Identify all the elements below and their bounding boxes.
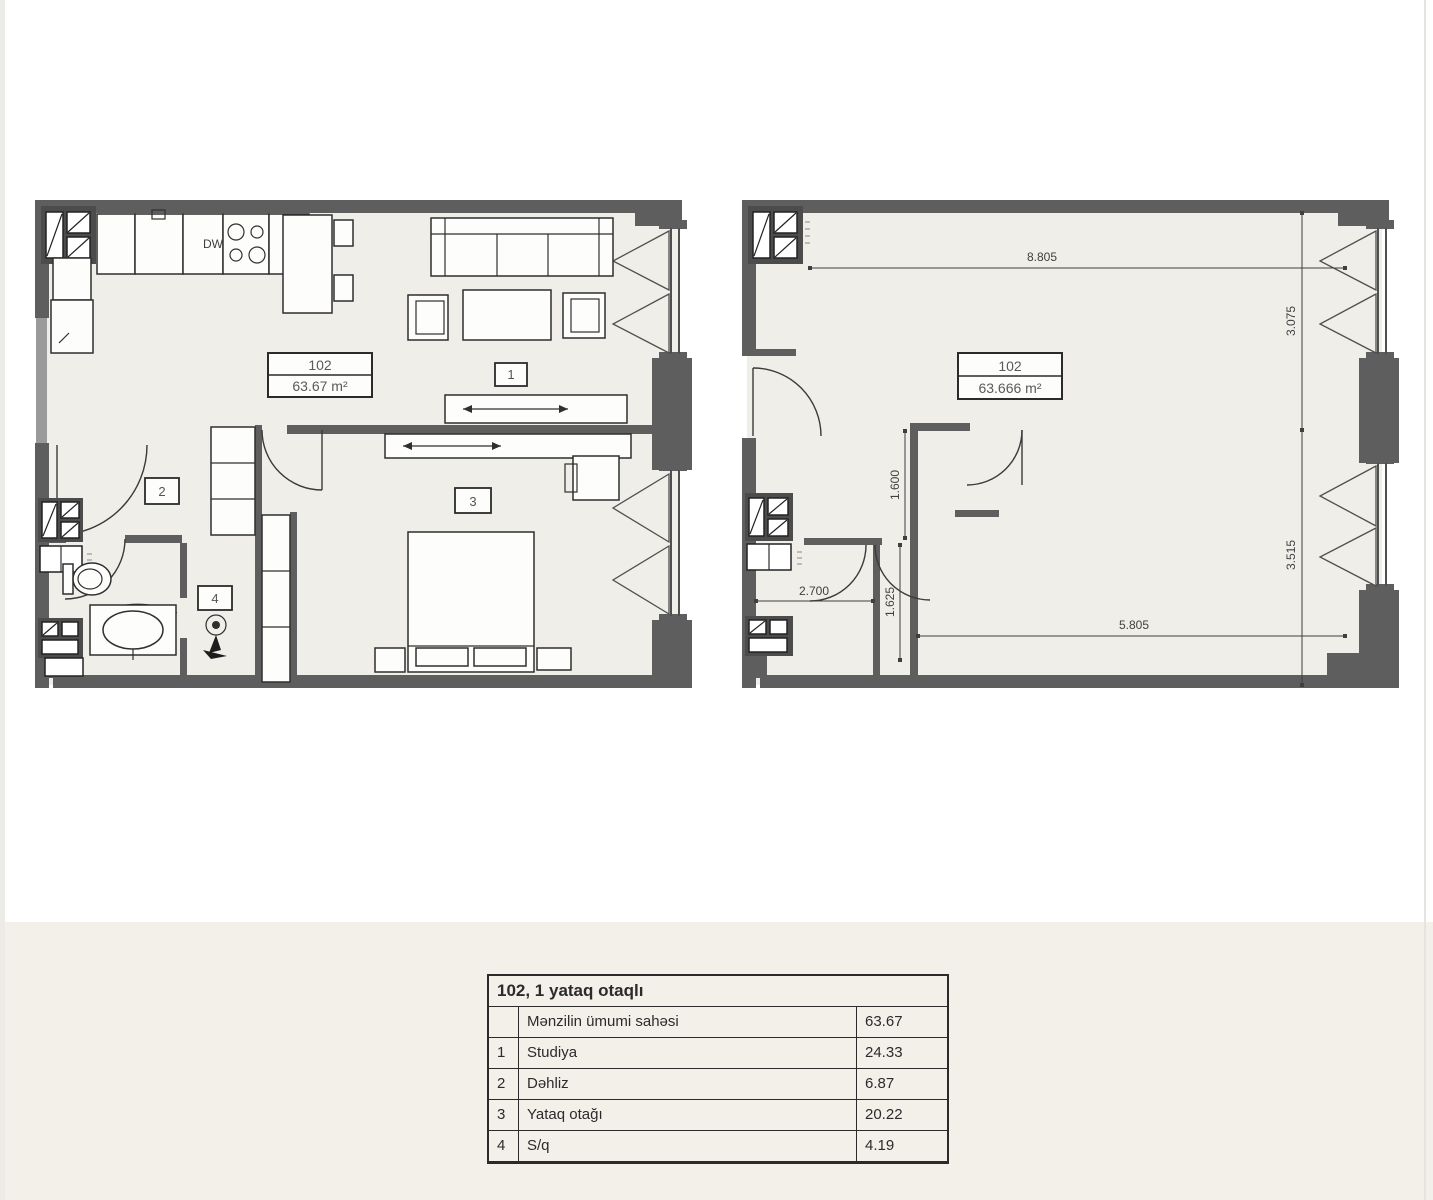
unit-label-box: 102 63.666 m² xyxy=(958,353,1062,399)
unit-number: 102 xyxy=(308,357,332,373)
room-tag-hall: 2 xyxy=(145,478,179,504)
sofa xyxy=(431,218,613,276)
hall-wardrobe xyxy=(211,427,255,535)
row-area: 4.19 xyxy=(857,1131,947,1161)
nightstand-left xyxy=(375,648,405,672)
row-number: 2 xyxy=(489,1069,519,1099)
row-area: 6.87 xyxy=(857,1069,947,1099)
table-row: 4 S/q 4.19 xyxy=(489,1131,947,1162)
row-area: 24.33 xyxy=(857,1038,947,1068)
room-tag-bath: 4 xyxy=(198,586,232,610)
toilet xyxy=(63,563,111,595)
nightstand-right xyxy=(537,648,571,670)
row-area: 63.67 xyxy=(857,1007,947,1037)
row-number: 1 xyxy=(489,1038,519,1068)
floor xyxy=(747,203,1382,685)
row-number: 3 xyxy=(489,1100,519,1130)
row-area: 20.22 xyxy=(857,1100,947,1130)
room-tag-studio: 1 xyxy=(495,363,527,386)
svg-text:1: 1 xyxy=(507,367,514,382)
utility-shaft-top xyxy=(748,206,810,264)
armchair-right xyxy=(563,293,605,338)
svg-text:4: 4 xyxy=(211,591,218,606)
utility-shaft-kitchen xyxy=(41,206,103,264)
unit-area: 63.666 m² xyxy=(978,380,1041,396)
unit-area: 63.67 m² xyxy=(292,378,348,394)
table-row: 2 Dəhliz 6.87 xyxy=(489,1069,947,1100)
area-table: 102, 1 yataq otaqlı Mənzilin ümumi sahəs… xyxy=(487,974,949,1164)
sliding-wardrobe-studio xyxy=(445,395,627,423)
fridge xyxy=(51,300,93,353)
dishwasher-label: DW xyxy=(203,237,224,251)
row-number: 4 xyxy=(489,1131,519,1161)
svg-text:5.805: 5.805 xyxy=(1119,618,1149,632)
row-name: S/q xyxy=(519,1131,857,1161)
page-right-edge xyxy=(1424,0,1426,1200)
room-tag-bedroom: 3 xyxy=(455,488,491,513)
corridor-closet xyxy=(262,515,290,682)
row-name: Dəhliz xyxy=(519,1069,857,1099)
svg-text:2.700: 2.700 xyxy=(799,584,829,598)
table-row: Mənzilin ümumi sahəsi 63.67 xyxy=(489,1007,947,1038)
table-row: 1 Studiya 24.33 xyxy=(489,1038,947,1069)
bed xyxy=(408,532,534,672)
bathtub-vanity xyxy=(90,604,177,660)
row-name: Yataq otağı xyxy=(519,1100,857,1130)
svg-text:3.515: 3.515 xyxy=(1284,540,1298,570)
armchair-left xyxy=(408,295,448,340)
stove xyxy=(223,214,269,274)
unit-number: 102 xyxy=(998,358,1022,374)
table-row: 3 Yataq otağı 20.22 xyxy=(489,1100,947,1131)
desk xyxy=(565,456,619,500)
svg-text:2: 2 xyxy=(158,484,165,499)
row-name: Studiya xyxy=(519,1038,857,1068)
sliding-wardrobe-bedroom xyxy=(385,434,631,458)
unit-label-box: 102 63.67 m² xyxy=(268,353,372,397)
svg-text:3: 3 xyxy=(469,494,476,509)
floor-plan-dimensioned: 102 63.666 m² 8.805 3.075 3.515 1.600 2.… xyxy=(742,198,1402,698)
svg-text:1.625: 1.625 xyxy=(883,587,897,617)
svg-text:1.600: 1.600 xyxy=(888,470,902,500)
area-table-title: 102, 1 yataq otaqlı xyxy=(489,976,947,1007)
svg-text:8.805: 8.805 xyxy=(1027,250,1057,264)
floor-plan-furnished: DW 102 63.67 m² 1 xyxy=(35,198,700,698)
page-left-edge xyxy=(0,0,5,1200)
row-number xyxy=(489,1007,519,1037)
row-name: Mənzilin ümumi sahəsi xyxy=(519,1007,857,1037)
coffee-table xyxy=(463,290,551,340)
svg-text:3.075: 3.075 xyxy=(1284,306,1298,336)
